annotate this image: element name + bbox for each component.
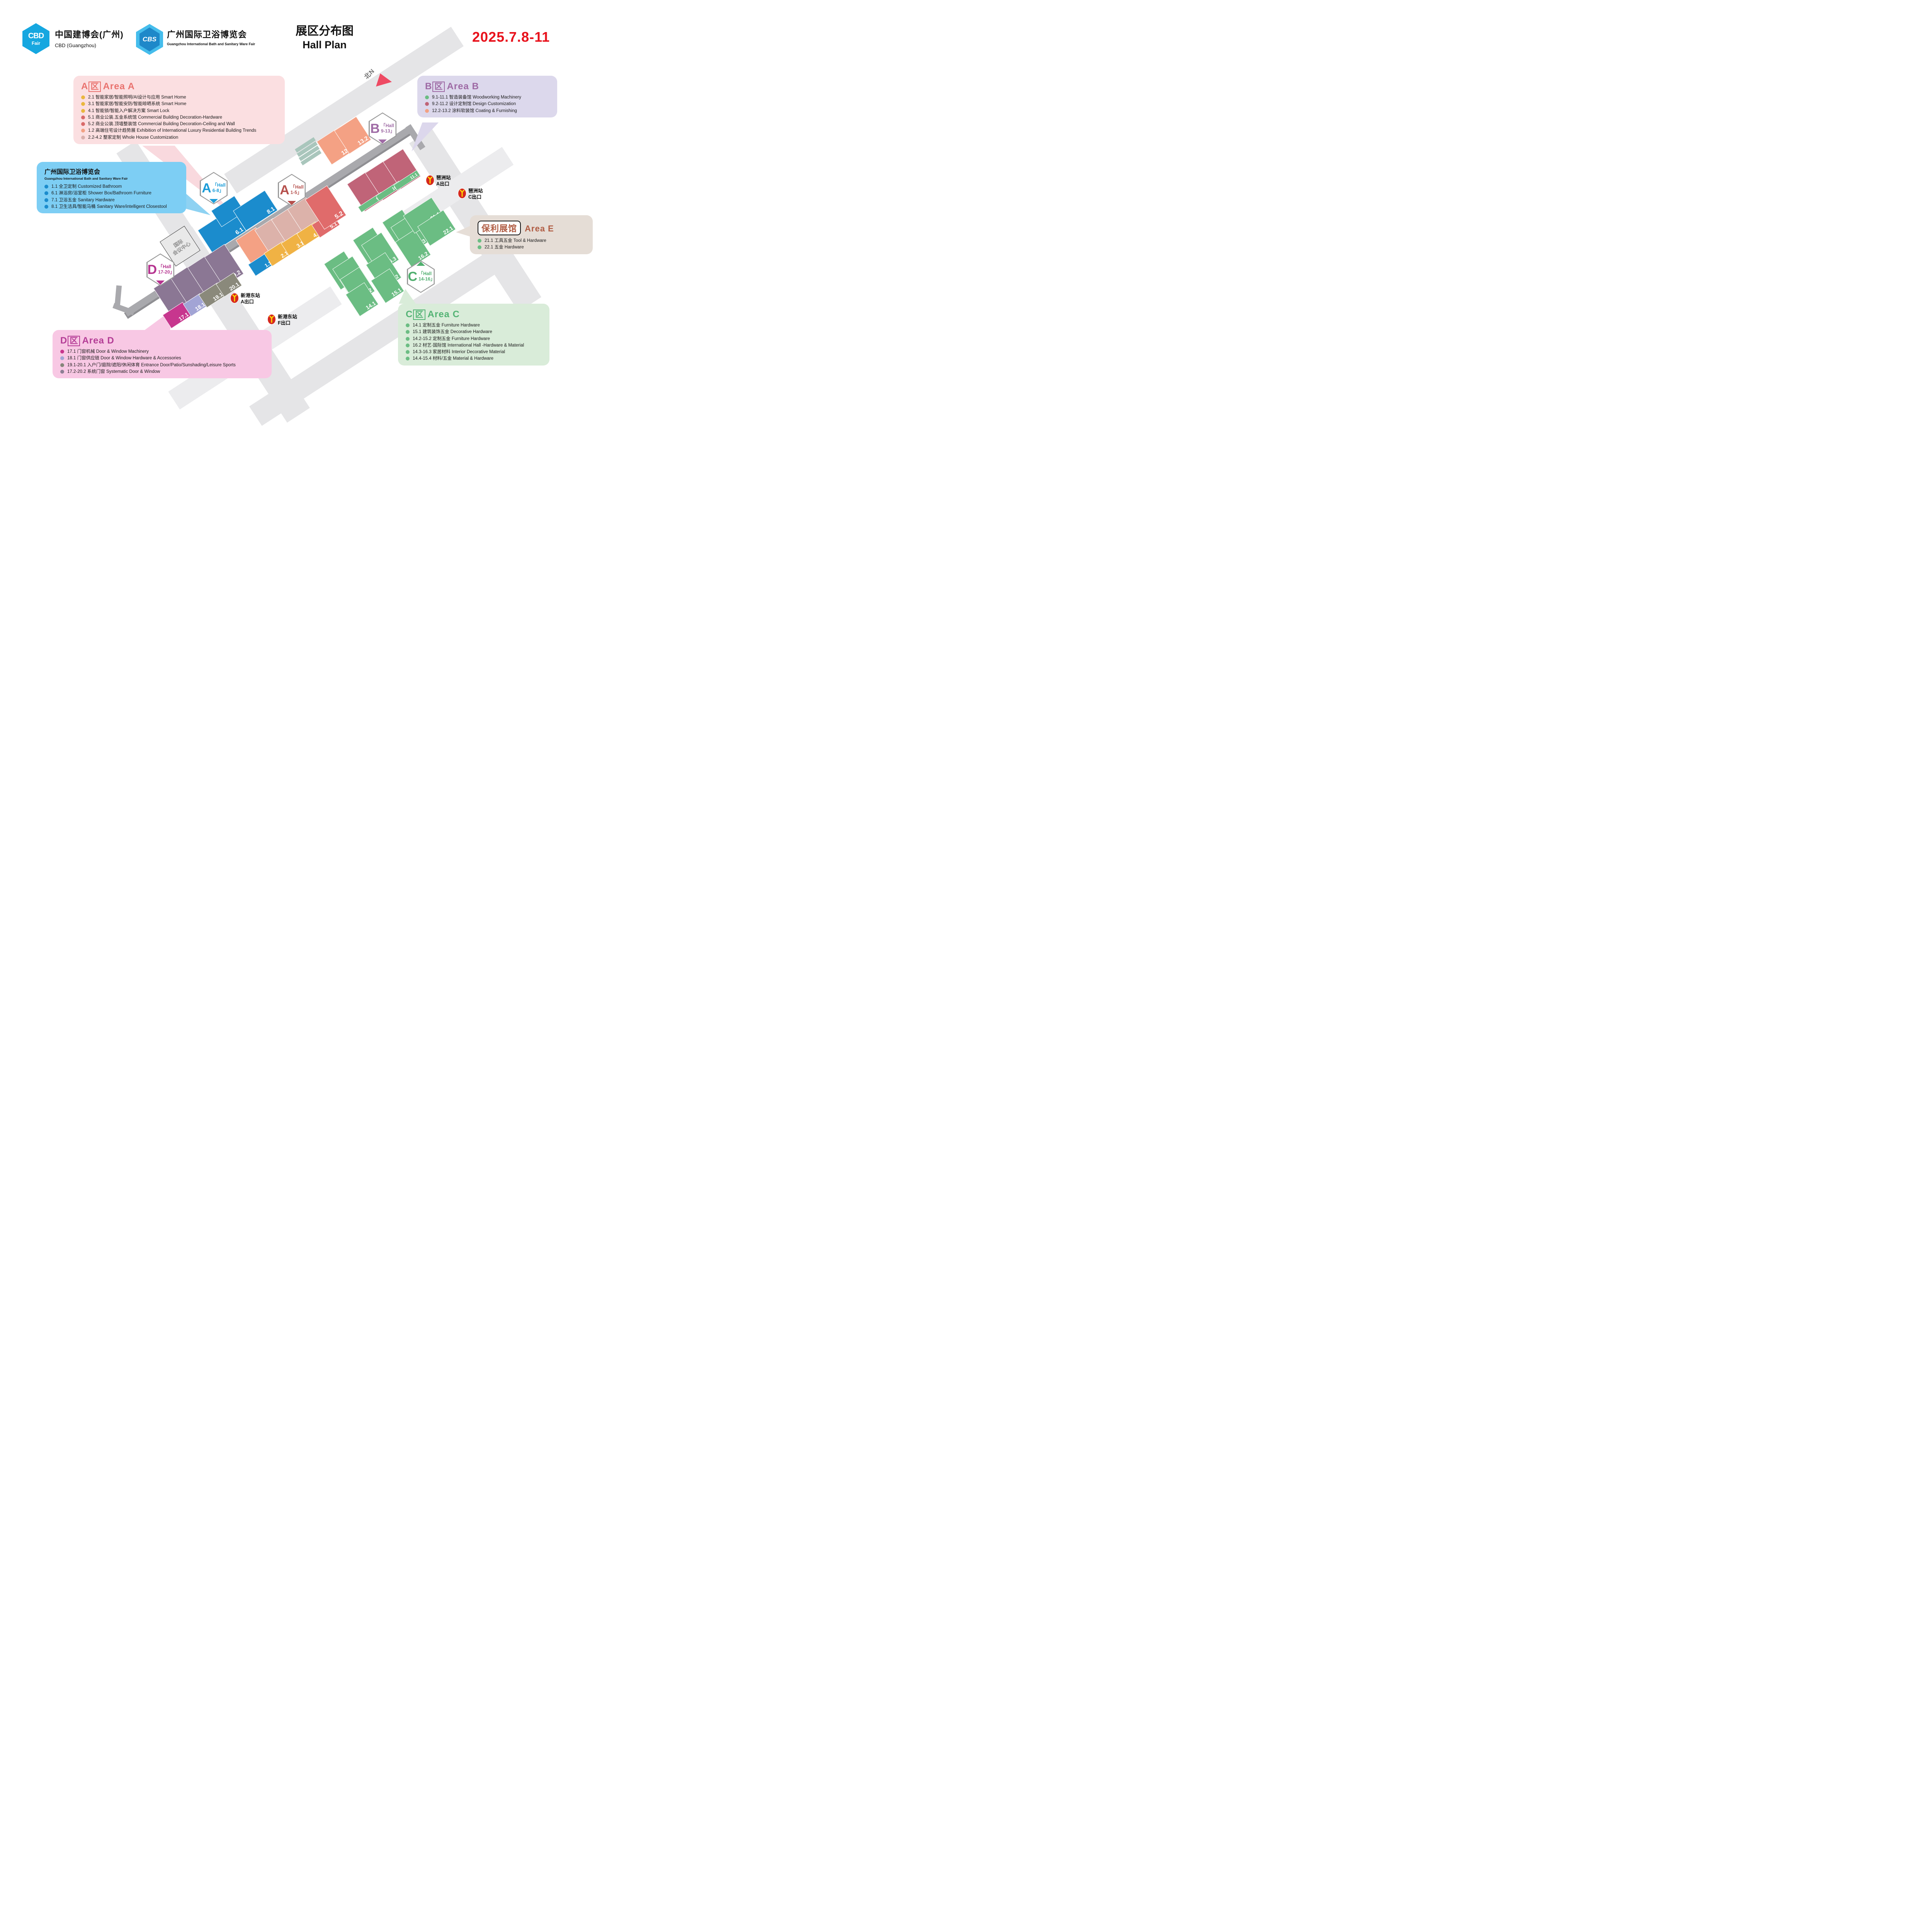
bullet-dot: [406, 337, 410, 341]
bullet-dot: [406, 323, 410, 327]
legend-area-e-title: 保利展馆Area E: [478, 221, 587, 235]
list-item: 6.1 淋浴房/浴室柜 Shower Box/Bathroom Furnitur…: [44, 190, 180, 197]
legend-bath-subtitle: Guangzhou International Bath and Sanitar…: [44, 177, 180, 180]
legend-bath-title: 广州国际卫浴博览会: [44, 167, 180, 176]
legend-area-b: B区Area B 9.1-11.1 智造装备馆 Woodworking Mach…: [417, 76, 557, 117]
bullet-dot: [425, 102, 429, 106]
legend-area-a: A区Area A 2.1 智能家居/智能照明/AI设计与应用 Smart Hom…: [73, 76, 285, 144]
list-item: 9.1-11.1 智造装备馆 Woodworking Machinery: [425, 94, 551, 101]
bullet-dot: [406, 330, 410, 334]
legend-area-d: D区Area D 17.1 门窗机械 Door & Window Machine…: [53, 330, 272, 378]
list-item: 14.3-16.3 家居材料 Interior Decorative Mater…: [406, 349, 543, 355]
bullet-dot: [81, 129, 85, 133]
list-item: 9.2-11.2 设计定制馆 Design Customization: [425, 101, 551, 107]
metro-icon: [458, 188, 466, 199]
legend-bath-fair: 广州国际卫浴博览会 Guangzhou International Bath a…: [37, 162, 186, 213]
metro-icon: [426, 175, 434, 185]
list-item: 12.2-13.2 涂料软装馆 Coating & Furnishing: [425, 108, 551, 114]
bullet-dot: [425, 109, 429, 113]
list-item: 15.1 建筑装饰五金 Decorative Hardware: [406, 329, 543, 335]
list-item: 21.1 工具五金 Tool & Hardware: [478, 238, 587, 244]
legend-area-d-title: D区Area D: [60, 335, 265, 346]
metro-station: 琶洲站A出口: [426, 175, 451, 187]
bullet-dot: [81, 109, 85, 113]
list-item: 16.2 材艺·国际馆 International Hall -Hardware…: [406, 342, 543, 349]
bullet-dot: [44, 191, 48, 195]
metro-icon: [267, 314, 276, 325]
list-item: 14.2-15.2 定制五金 Furniture Hardware: [406, 336, 543, 342]
bullet-dot: [44, 205, 48, 209]
bullet-dot: [425, 95, 429, 99]
legend-area-c-title: C区Area C: [406, 309, 543, 320]
list-item: 17.2-20.2 系统门窗 Systematic Door & Window: [60, 369, 265, 375]
list-item: 17.1 门窗机械 Door & Window Machinery: [60, 349, 265, 355]
list-item: 7.1 卫浴五金 Sanitary Hardware: [44, 197, 180, 204]
bullet-dot: [60, 356, 64, 360]
list-item: 2.2-4.2 整家定制 Whole House Customization: [81, 134, 279, 141]
poly-pavilion-badge: 保利展馆: [478, 221, 521, 235]
metro-station: 新港东站F出口: [267, 314, 297, 326]
marker-hall-14-16: C「Hall14-16」: [407, 260, 435, 293]
metro-icon: [230, 293, 239, 303]
bullet-dot: [81, 136, 85, 139]
metro-station: 琶洲站C出口: [458, 188, 483, 200]
list-item: 5.1 商业公装.五金系统馆 Commercial Building Decor…: [81, 114, 279, 121]
bullet-dot: [81, 102, 85, 106]
list-item: 2.1 智能家居/智能照明/AI设计与应用 Smart Home: [81, 94, 279, 101]
bullet-dot: [478, 239, 481, 243]
list-item: 1.2 高端住宅设计趋势展 Exhibition of Internationa…: [81, 128, 279, 134]
legend-area-c: C区Area C 14.1 定制五金 Furniture Hardware 15…: [398, 304, 549, 366]
legend-area-a-title: A区Area A: [81, 81, 279, 92]
bullet-dot: [478, 245, 481, 249]
bullet-dot: [44, 198, 48, 202]
marker-hall-9-13: B「Hall9-13」: [369, 112, 396, 145]
list-item: 22.1 五金 Hardware: [478, 244, 587, 251]
legend-area-e: 保利展馆Area E 21.1 工具五金 Tool & Hardware 22.…: [470, 215, 593, 254]
bullet-dot: [81, 95, 85, 99]
bullet-dot: [406, 343, 410, 347]
bullet-dot: [60, 363, 64, 367]
metro-station: 新港东站A出口: [230, 293, 260, 305]
bullet-dot: [44, 185, 48, 189]
list-item: 4.1 智能锁/智能入户解决方案 Smart Lock: [81, 108, 279, 114]
list-item: 1.1 全卫定制 Customized Bathroom: [44, 184, 180, 190]
list-item: 14.4-15.4 材料/五金 Material & Hardware: [406, 355, 543, 362]
list-item: 8.1 卫生洁具/智能马桶 Sanitary Ware/intelligent …: [44, 204, 180, 210]
bullet-dot: [406, 350, 410, 354]
bullet-dot: [60, 370, 64, 374]
bullet-dot: [81, 122, 85, 126]
bullet-dot: [60, 350, 64, 354]
list-item: 14.1 定制五金 Furniture Hardware: [406, 322, 543, 329]
marker-hall-17-20: D「Hall17-20」: [146, 253, 174, 286]
list-item: 19.1-20.1 入户门/庭院/遮阳/休闲体育 Entrance Door/P…: [60, 362, 265, 369]
bullet-dot: [406, 357, 410, 360]
legend-area-b-title: B区Area B: [425, 81, 551, 92]
marker-hall-1-5: A「Hall1-5」: [278, 174, 306, 206]
list-item: 5.2 商业公装.顶墙整装馆 Commercial Building Decor…: [81, 121, 279, 128]
bullet-dot: [81, 116, 85, 119]
list-item: 3.1 智能家居/智能安防/智能晾晒系统 Smart Home: [81, 101, 279, 107]
list-item: 18.1 门窗供应链 Door & Window Hardware & Acce…: [60, 355, 265, 362]
marker-hall-6-8: A「Hall6-8」: [200, 172, 228, 204]
